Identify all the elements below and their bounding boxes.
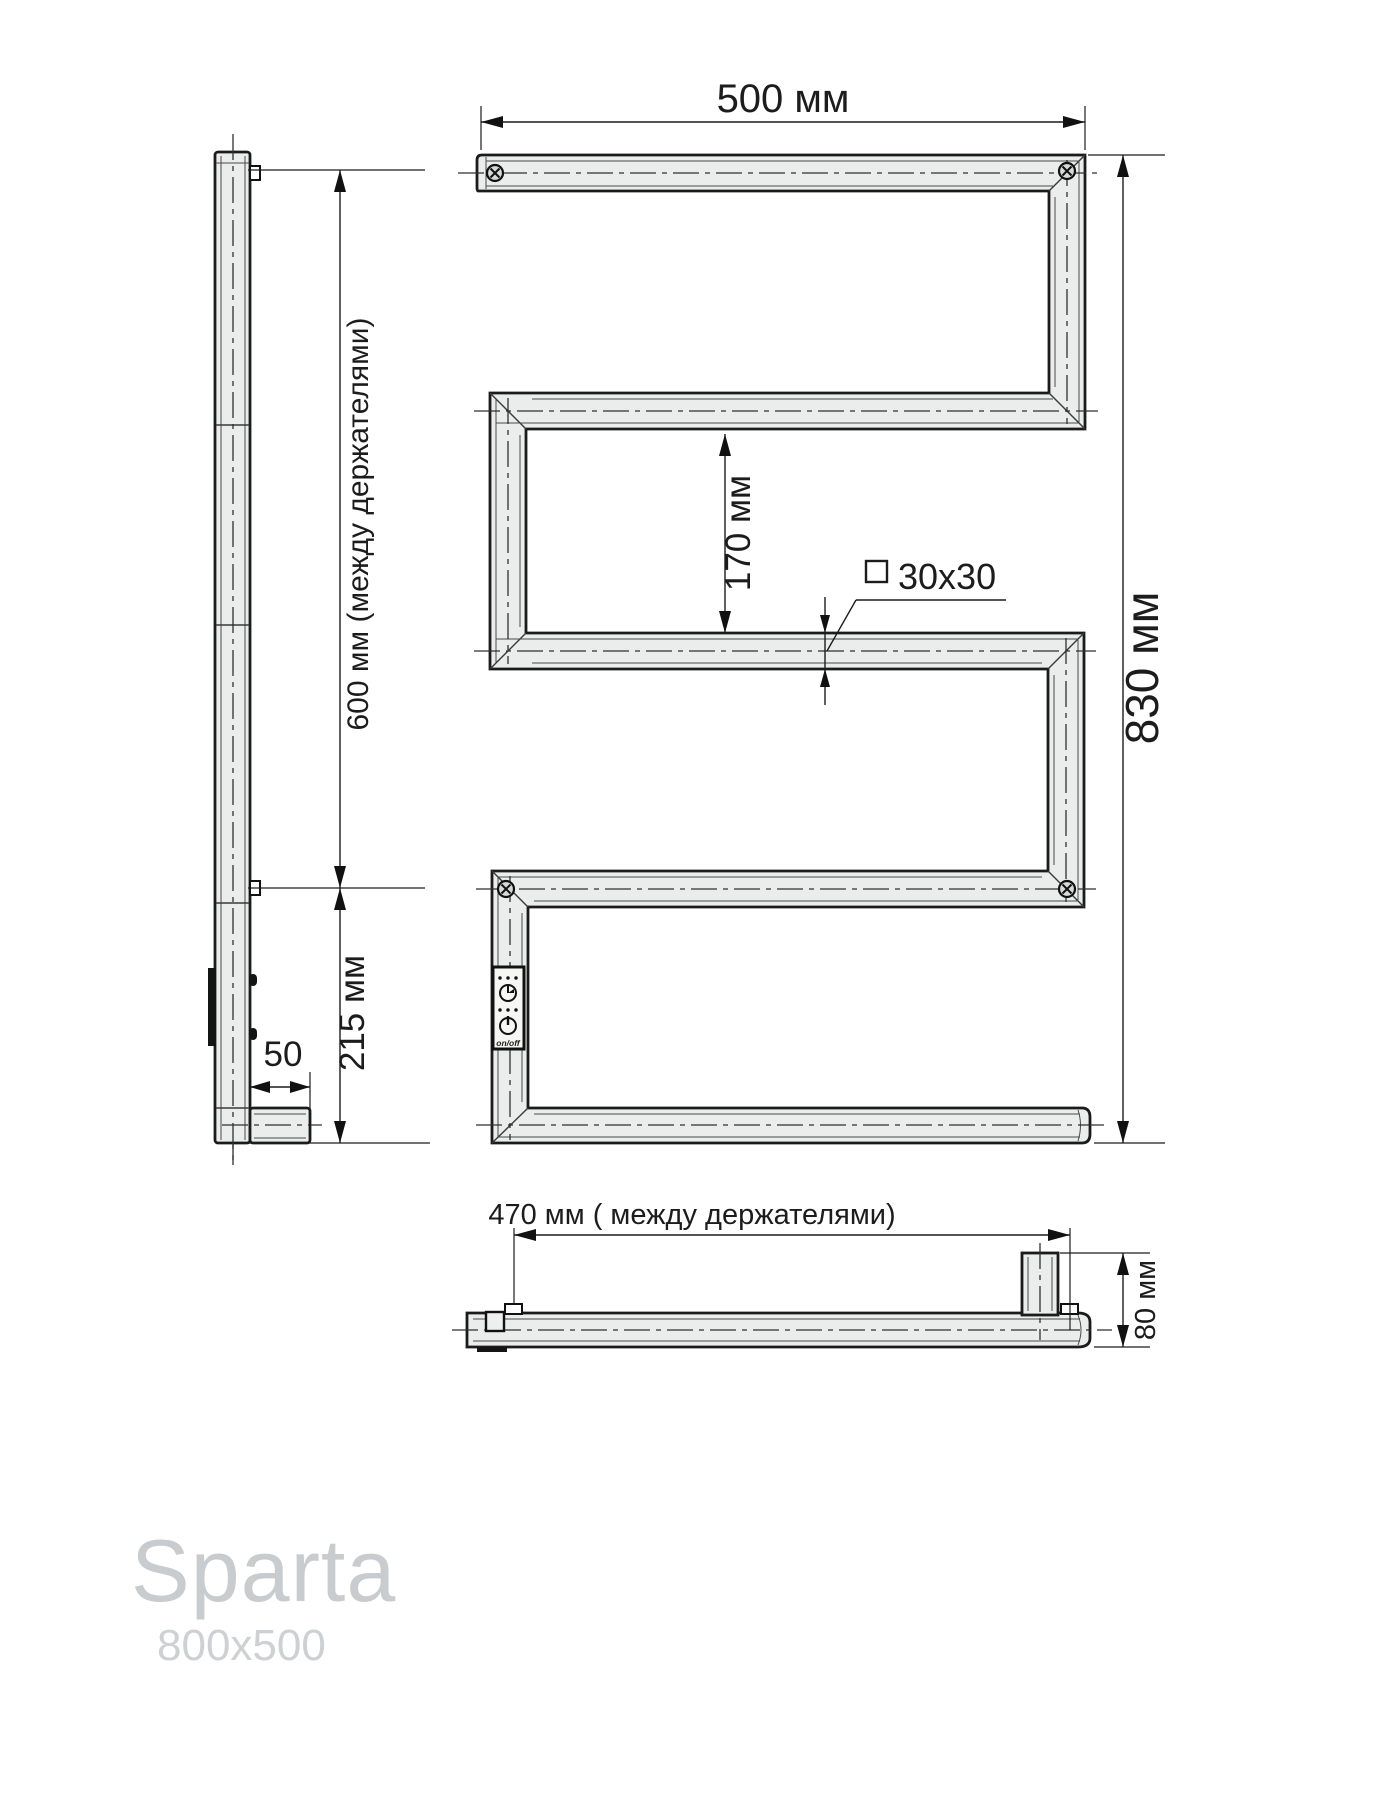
dimension-80-label: 80 мм [1130,1260,1162,1340]
dimension-215: 215 мм [248,888,430,1143]
wall-bracket-top [250,166,260,180]
dimension-170-label: 170 мм [719,475,758,591]
s-shaped-tube [477,155,1090,1143]
towel-rail-drawing: 600 мм (между держателями) 215 мм 50 [0,0,1376,1800]
button-bump [249,974,257,986]
dimension-600: 600 мм (между держателями) [248,170,425,888]
mount-screw-icon [1059,881,1075,897]
dimension-215-label: 215 мм [333,955,372,1071]
dimension-500: 500 мм [481,77,1085,150]
holder-bracket-left [505,1304,522,1314]
square-section-icon [866,561,887,582]
mount-screw-icon [1059,163,1075,179]
dimension-470-label: 470 мм ( между держателями) [488,1199,895,1231]
dimension-600-label: 600 мм (между держателями) [342,317,375,730]
product-size: 800x500 [157,1621,326,1670]
dimension-50-label: 50 [264,1035,303,1074]
tube-section-label: 30x30 [898,556,996,597]
dimension-170: 170 мм [719,434,758,633]
rear-box [208,968,216,1046]
dimension-830: 830 мм [1088,155,1168,1143]
mount-screw-icon [487,165,503,181]
control-panel: on/off [493,967,524,1049]
panel-top-view [486,1312,504,1331]
technical-drawing-page: 600 мм (между держателями) 215 мм 50 [0,0,1376,1800]
end-cap-shadow [477,1347,507,1352]
dimension-470: 470 мм ( между держателями) [488,1199,1070,1330]
dimension-500-label: 500 мм [717,77,850,121]
button-bump [249,1028,257,1040]
side-view: 600 мм (между держателями) 215 мм 50 [208,134,430,1165]
brand-block: Sparta 800x500 [131,1521,396,1670]
front-view: on/off 500 мм 830 мм 170 мм [458,77,1168,1143]
tube-section-callout: 30x30 [820,556,1006,705]
onoff-label: on/off [496,1038,521,1048]
mount-screw-icon [498,881,514,897]
product-name: Sparta [131,1521,396,1620]
dimension-830-label: 830 мм [1116,592,1168,745]
bottom-view: 470 мм ( между держателями) 80 мм [452,1199,1162,1352]
